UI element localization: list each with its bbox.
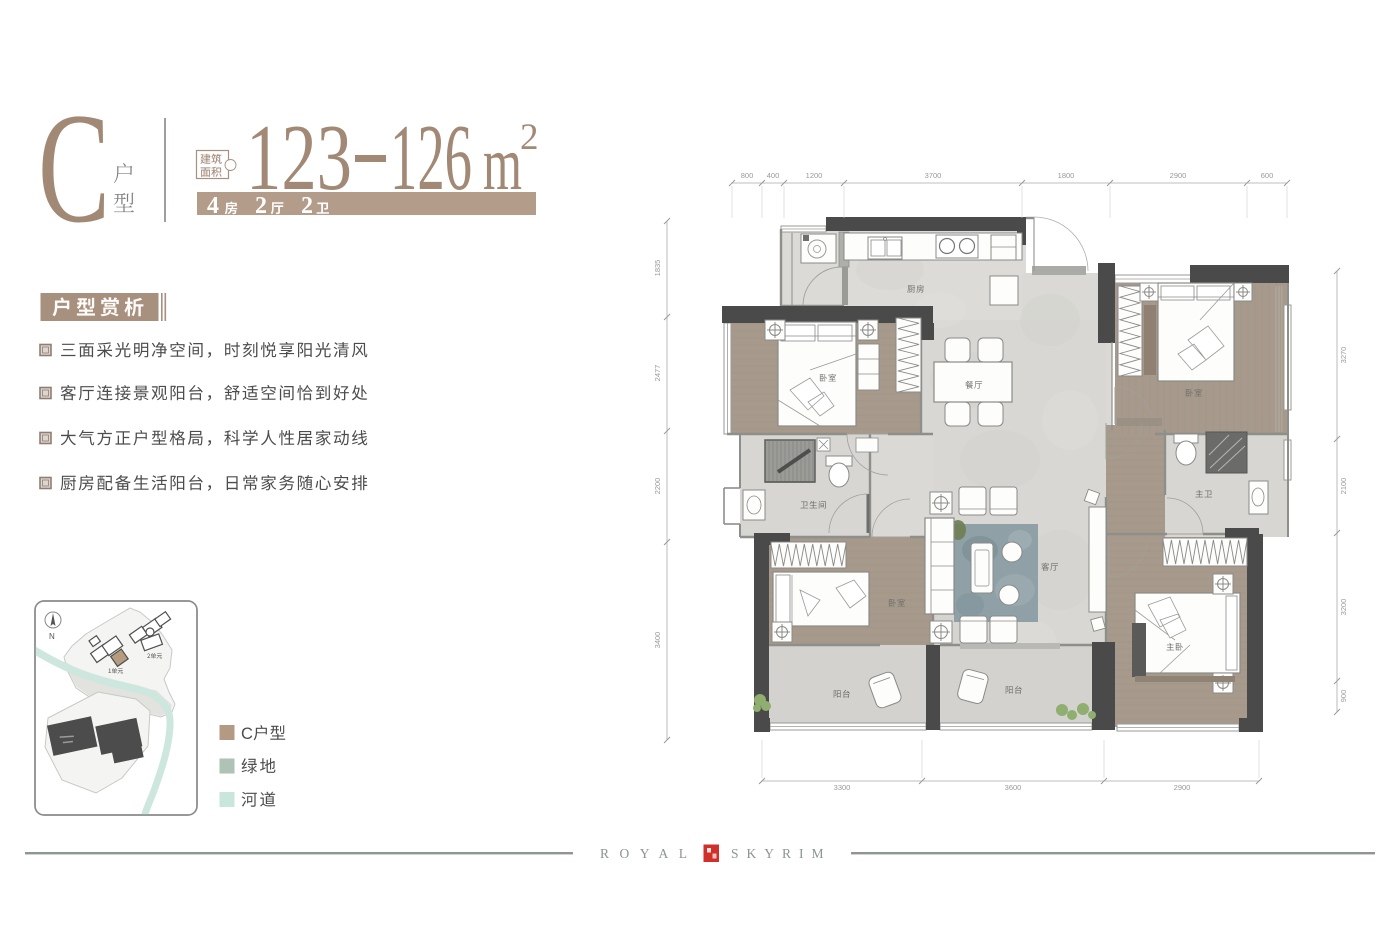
svg-text:800: 800	[741, 171, 754, 180]
svg-text:2: 2	[255, 193, 267, 219]
svg-text:2900: 2900	[1174, 783, 1191, 792]
svg-text:3200: 3200	[1339, 599, 1348, 616]
svg-text:1835: 1835	[653, 260, 662, 277]
svg-text:3300: 3300	[834, 783, 851, 792]
svg-text:C: C	[241, 725, 253, 743]
svg-text:3700: 3700	[925, 171, 942, 180]
svg-text:3600: 3600	[1005, 783, 1022, 792]
svg-text:900: 900	[1339, 690, 1348, 703]
svg-text:3270: 3270	[1339, 347, 1348, 364]
svg-text:400: 400	[767, 171, 780, 180]
svg-text:1800: 1800	[1058, 171, 1075, 180]
svg-text:600: 600	[1261, 171, 1274, 180]
svg-text:N: N	[49, 632, 55, 641]
svg-text:SKYRIM: SKYRIM	[731, 846, 832, 861]
svg-text:2200: 2200	[653, 478, 662, 495]
svg-text:2100: 2100	[1339, 478, 1348, 495]
svg-text:2900: 2900	[1170, 171, 1187, 180]
svg-text:4: 4	[207, 193, 219, 219]
svg-text:ROYAL: ROYAL	[600, 846, 698, 861]
svg-text:1200: 1200	[806, 171, 823, 180]
svg-text:3400: 3400	[653, 632, 662, 649]
svg-text:2: 2	[520, 117, 539, 158]
svg-text:2477: 2477	[653, 365, 662, 382]
svg-text:2: 2	[301, 193, 313, 219]
svg-text:C: C	[38, 81, 110, 256]
